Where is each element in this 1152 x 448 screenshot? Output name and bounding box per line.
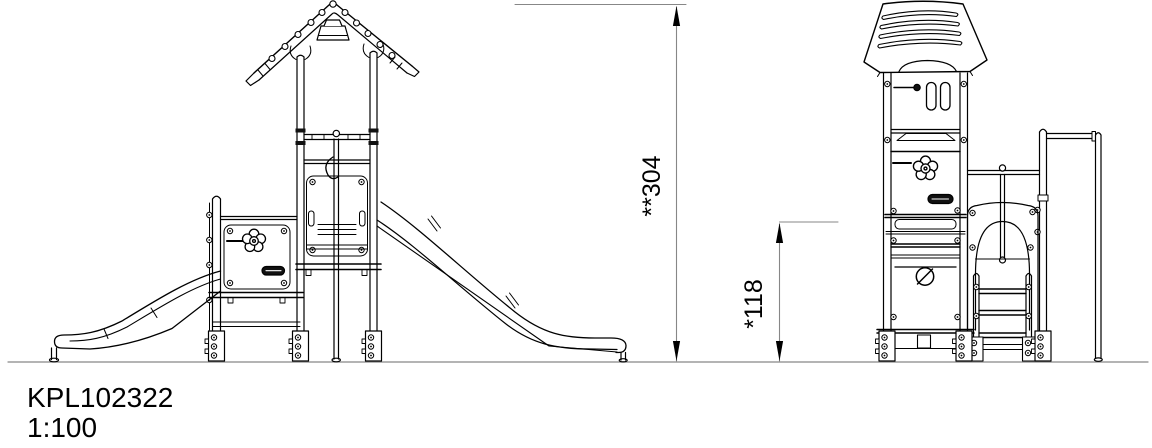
total-height-label: **304 [638, 155, 666, 216]
front-roof [864, 1, 987, 76]
product-code: KPL102322 [27, 382, 173, 413]
fireman-pole-side [326, 139, 341, 362]
front-tower-posts [884, 73, 968, 331]
small-slide [50, 271, 221, 362]
dimension-platform-height: *118 [740, 222, 838, 361]
front-top-panel [894, 83, 950, 111]
arrowhead-down [776, 341, 783, 361]
porthole-icon [916, 268, 933, 285]
cad-sheet: **304 *118 KPL102322 1:100 [0, 0, 1152, 448]
gable-roof [246, 1, 419, 86]
steering-wheel-icon [243, 229, 266, 251]
left-elevation-view [50, 1, 628, 362]
arch-doorway [976, 222, 1030, 331]
small-tower [207, 196, 303, 331]
arrowhead-up [673, 6, 680, 26]
steering-wheel-icon [913, 156, 937, 179]
grab-handle-icon [262, 267, 285, 276]
front-mid-panel [885, 130, 967, 259]
drawing-scale: 1:100 [27, 412, 97, 443]
technical-drawing-canvas: **304 *118 KPL102322 1:100 [0, 0, 1152, 448]
grab-handle-icon [928, 195, 953, 204]
safety-bar [304, 130, 370, 139]
title-block: KPL102322 1:100 [27, 382, 173, 443]
platform-height-label: *118 [740, 279, 768, 329]
arrowhead-down [673, 341, 680, 361]
arch-steps-section [968, 129, 1049, 361]
front-elevation-view [864, 1, 1102, 361]
big-slide [377, 202, 627, 362]
left-view-base-plates [205, 331, 382, 361]
arrowhead-up [776, 223, 783, 243]
main-tower-posts [296, 51, 379, 331]
fireman-pole-front [1047, 132, 1103, 362]
dimension-total-height: **304 [515, 5, 686, 362]
steps [979, 289, 1026, 338]
